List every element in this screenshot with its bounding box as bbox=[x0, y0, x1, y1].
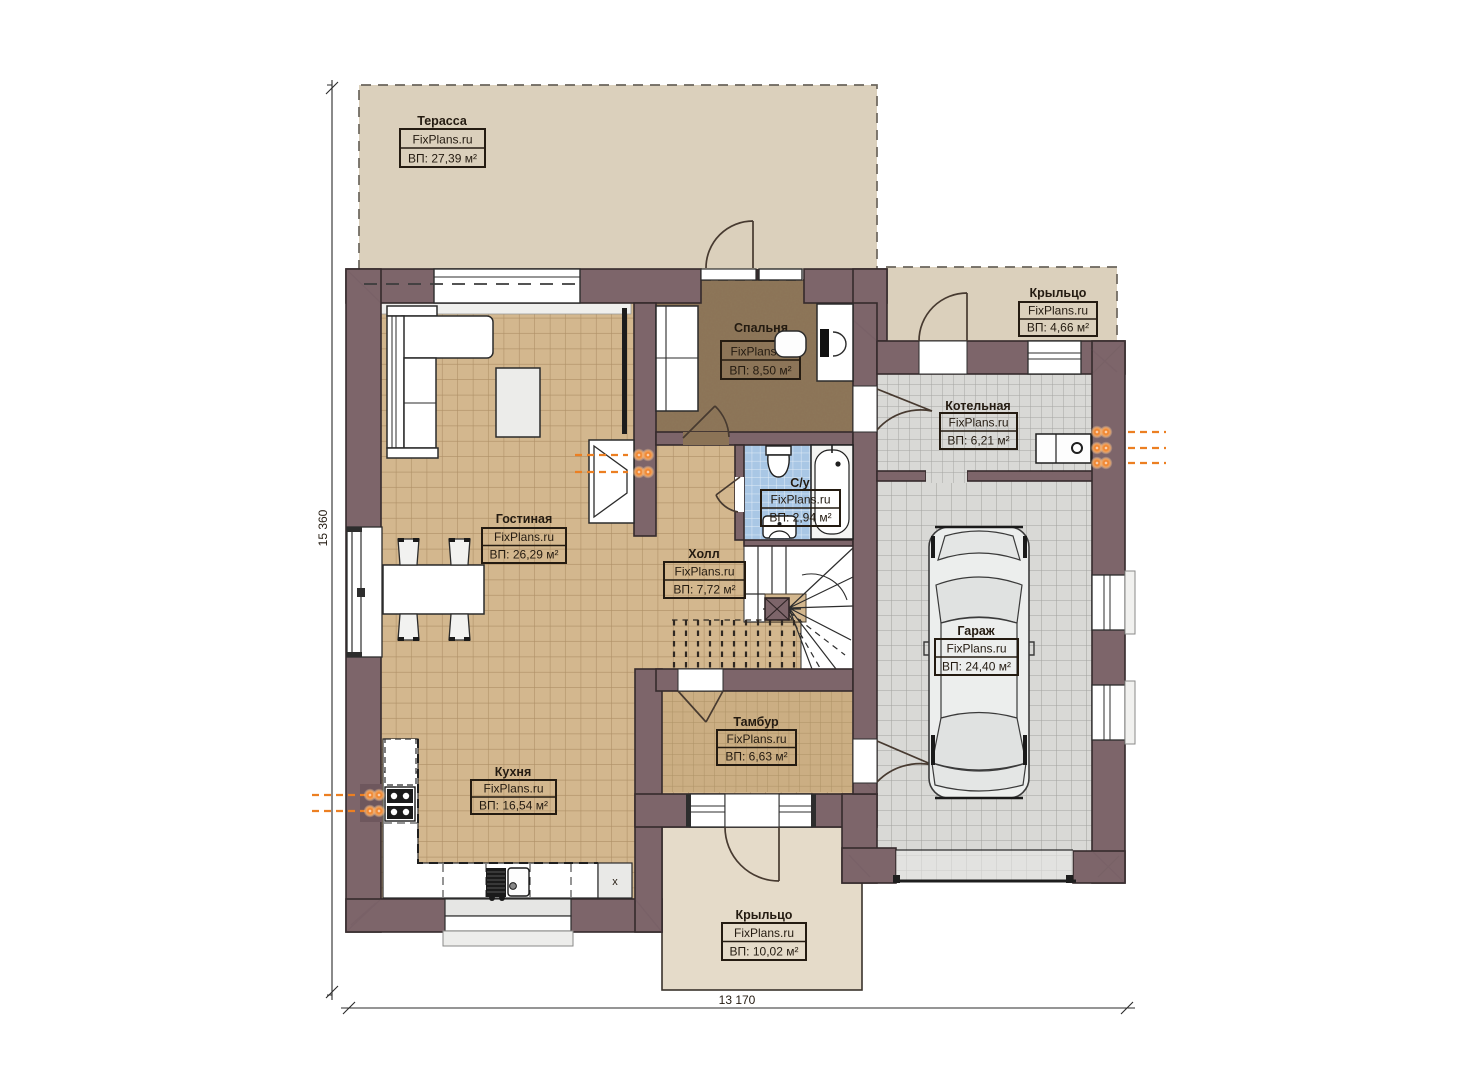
svg-text:Гостиная: Гостиная bbox=[496, 512, 553, 526]
svg-text:Терасса: Терасса bbox=[417, 114, 468, 128]
svg-text:x: x bbox=[612, 876, 618, 888]
svg-text:ВП: 26,29 м²: ВП: 26,29 м² bbox=[490, 548, 559, 562]
svg-text:Гараж: Гараж bbox=[957, 624, 994, 638]
svg-text:С/у: С/у bbox=[790, 476, 810, 490]
svg-text:ВП: 16,54 м²: ВП: 16,54 м² bbox=[479, 799, 548, 813]
svg-text:ВП: 4,66 м²: ВП: 4,66 м² bbox=[1027, 321, 1089, 335]
svg-text:FixPlans.ru: FixPlans.ru bbox=[483, 782, 543, 796]
svg-text:ВП: 7,72 м²: ВП: 7,72 м² bbox=[673, 583, 735, 597]
svg-text:15 360: 15 360 bbox=[316, 509, 330, 546]
svg-text:Крыльцо: Крыльцо bbox=[736, 908, 793, 922]
svg-text:Кухня: Кухня bbox=[495, 765, 532, 779]
svg-text:Крыльцо: Крыльцо bbox=[1030, 286, 1087, 300]
svg-text:FixPlans.ru: FixPlans.ru bbox=[494, 530, 554, 544]
svg-text:FixPlans.ru: FixPlans.ru bbox=[948, 416, 1008, 430]
svg-text:FixPlans.ru: FixPlans.ru bbox=[734, 926, 794, 940]
svg-text:ВП: 8,50 м²: ВП: 8,50 м² bbox=[729, 364, 791, 378]
svg-text:ВП: 2,94 м²: ВП: 2,94 м² bbox=[769, 511, 831, 525]
svg-text:Котельная: Котельная bbox=[945, 399, 1010, 413]
svg-text:ВП: 6,63 м²: ВП: 6,63 м² bbox=[725, 750, 787, 764]
svg-text:ВП: 10,02 м²: ВП: 10,02 м² bbox=[730, 945, 799, 959]
svg-text:ВП: 27,39 м²: ВП: 27,39 м² bbox=[408, 152, 477, 166]
svg-text:ВП: 24,40 м²: ВП: 24,40 м² bbox=[942, 660, 1011, 674]
svg-text:FixPlans.ru: FixPlans.ru bbox=[726, 732, 786, 746]
svg-text:13 170: 13 170 bbox=[719, 993, 756, 1007]
svg-text:FixPlans.ru: FixPlans.ru bbox=[946, 642, 1006, 656]
svg-text:FixPlans.ru: FixPlans.ru bbox=[1028, 304, 1088, 318]
svg-text:ВП: 6,21 м²: ВП: 6,21 м² bbox=[947, 434, 1009, 448]
svg-text:FixPlans.ru: FixPlans.ru bbox=[412, 133, 472, 147]
svg-text:FixPlans.ru: FixPlans.ru bbox=[770, 493, 830, 507]
svg-text:Холл: Холл bbox=[688, 547, 719, 561]
svg-text:FixPlans.ru: FixPlans.ru bbox=[674, 565, 734, 579]
svg-text:Тамбур: Тамбур bbox=[733, 715, 779, 729]
